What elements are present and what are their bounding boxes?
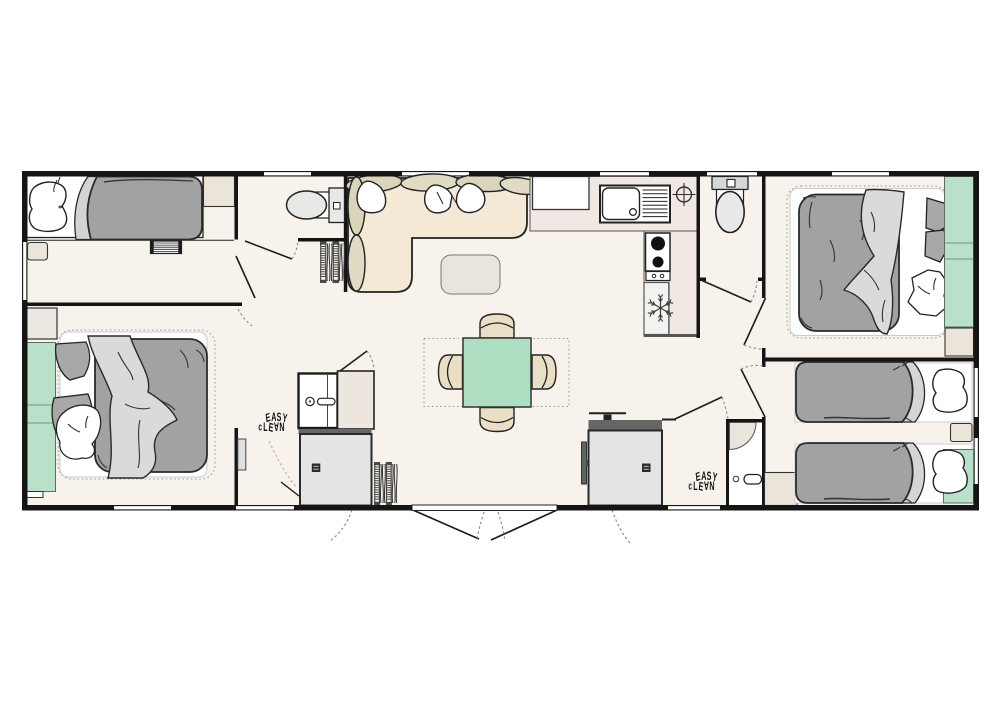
svg-text:N: N (279, 421, 284, 434)
svg-text:L: L (263, 421, 267, 434)
svg-text:c: c (258, 421, 262, 433)
svg-text:A: A (274, 419, 279, 432)
svg-text:A: A (704, 478, 709, 491)
svg-text:c: c (688, 480, 692, 492)
svg-text:N: N (709, 480, 714, 493)
svg-text:L: L (693, 480, 697, 493)
